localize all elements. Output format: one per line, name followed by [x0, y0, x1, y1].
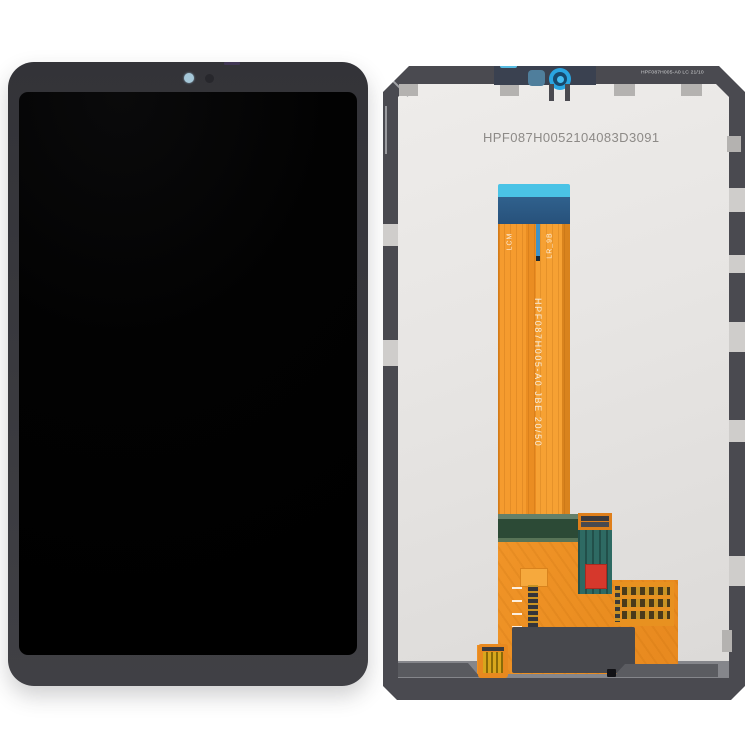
frame-tab [500, 84, 519, 96]
red-component [585, 564, 607, 589]
lcd-flex-connector [498, 197, 570, 224]
flex-pull-tab-tip [536, 256, 540, 261]
panel-spec-label: HPF087H005-A0 LC 21/10 [641, 69, 707, 75]
smd-row [622, 611, 670, 619]
frame-tab [681, 84, 702, 96]
bottom-shield-wedge [398, 663, 480, 677]
frame-notch [383, 340, 398, 366]
ribbon-label-lcm: LCM [506, 233, 513, 251]
frame-tab [727, 136, 741, 152]
product-photo: HPF087H005-A0 LC 21/10 HPF087H0052104083… [0, 0, 750, 750]
rear-camera-lens [557, 76, 564, 83]
front-screen [19, 92, 357, 655]
smd-column [615, 586, 620, 622]
gold-contact-connector [478, 644, 508, 678]
smd-component-cluster [614, 582, 674, 626]
connector-tick-marks [512, 587, 522, 627]
frame-tab [614, 84, 635, 96]
lcd-back-panel: HPF087H005-A0 LC 21/10 HPF087H0052104083… [383, 66, 745, 700]
front-camera-dot [184, 73, 194, 83]
smd-row [622, 587, 670, 595]
frame-notch [729, 188, 745, 212]
flex-part-number: HPF087H005-A0 JBE 20/50 [533, 298, 543, 447]
gold-contact-pins [483, 652, 503, 673]
driver-connector [578, 513, 612, 530]
stiffener-plate [512, 627, 635, 673]
connector-protect-film [498, 184, 570, 197]
frame-notch [722, 630, 732, 652]
smd-row [622, 599, 670, 607]
bottom-shield-bar [613, 664, 718, 677]
camera-notch-bar [549, 84, 554, 101]
camera-flex-tab [500, 62, 517, 68]
light-sensor-dot [205, 74, 214, 83]
frame-notch [383, 224, 398, 246]
connector-band [482, 647, 504, 651]
tablet-front-assembly [8, 62, 368, 686]
frame-tab [399, 84, 418, 96]
frame-notch [729, 322, 745, 352]
sensor-window [528, 70, 545, 86]
camera-notch-bar [565, 84, 570, 101]
frame-notch [729, 556, 745, 586]
frame-notch [729, 420, 745, 442]
ribbon-label-lr9b: LR_9B [547, 232, 554, 258]
top-flex-mark [224, 62, 240, 65]
edge-highlight [385, 106, 387, 154]
camera-bracket [494, 66, 596, 85]
frame-notch [729, 255, 745, 273]
component-nub [607, 669, 616, 677]
pcb-strip [498, 514, 578, 542]
panel-serial-number: HPF087H0052104083D3091 [483, 130, 653, 145]
board-connector-pins [528, 585, 538, 627]
